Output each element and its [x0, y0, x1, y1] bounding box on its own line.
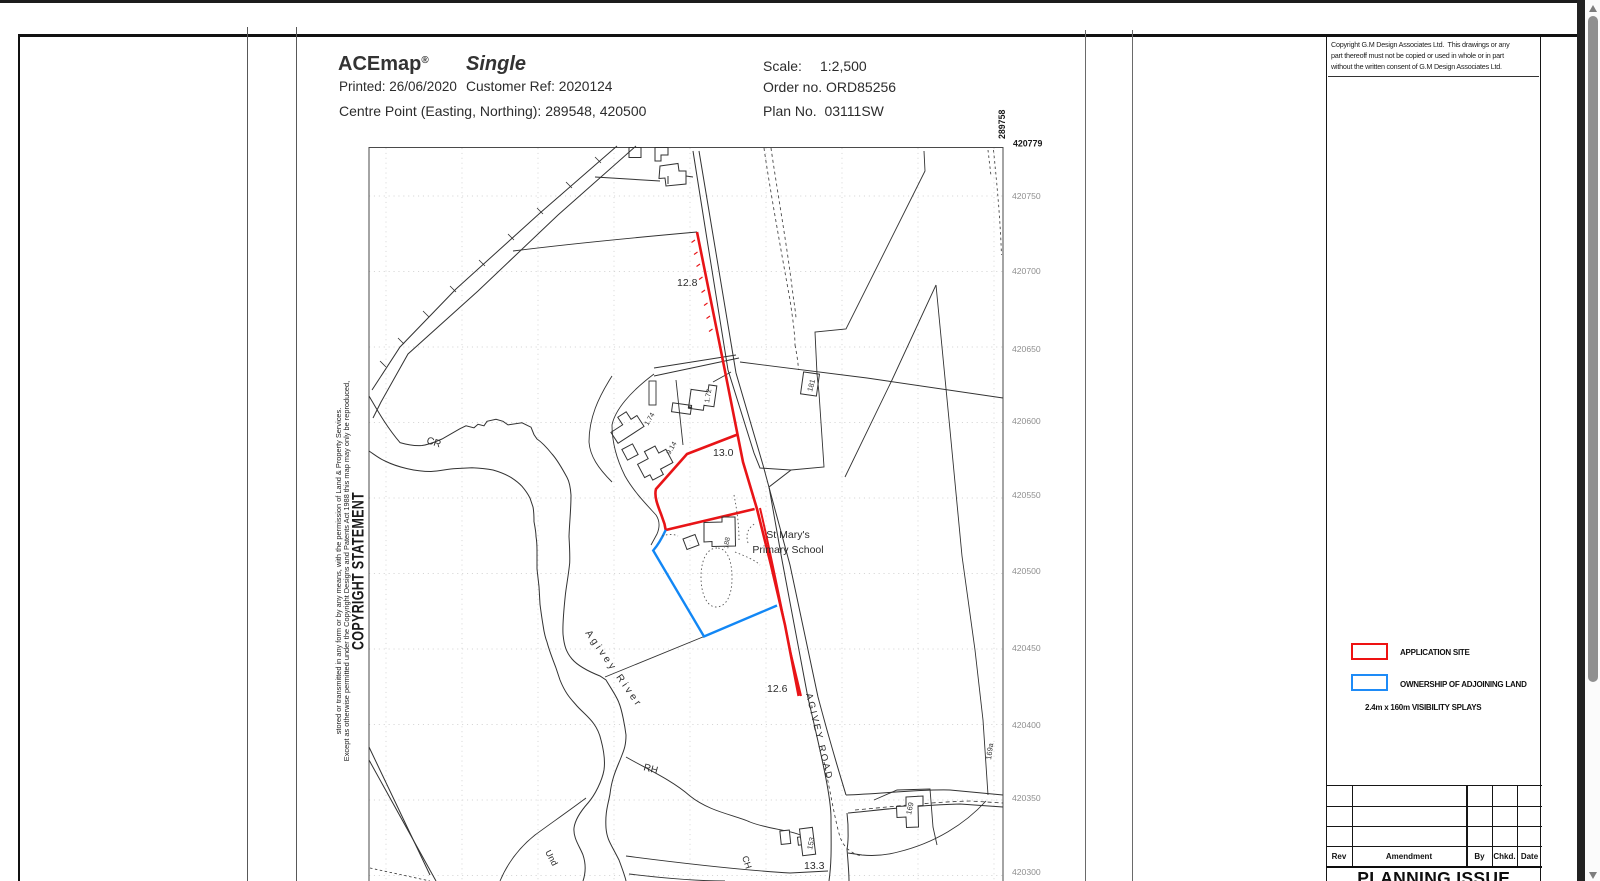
svg-text:RH: RH [642, 762, 659, 776]
svg-text:420550: 420550 [1012, 490, 1041, 500]
svg-text:420500: 420500 [1012, 566, 1041, 576]
svg-text:CR: CR [425, 435, 442, 450]
svg-text:CH: CH [740, 855, 754, 870]
svg-text:13.3: 13.3 [804, 860, 825, 872]
svg-text:9.14: 9.14 [666, 441, 679, 456]
svg-text:Und: Und [543, 848, 560, 867]
svg-text:AGIVEY ROAD: AGIVEY ROAD [803, 692, 835, 782]
svg-text:420750: 420750 [1012, 191, 1041, 201]
svg-text:169a: 169a [984, 742, 995, 761]
svg-text:420700: 420700 [1012, 266, 1041, 276]
svg-text:289758: 289758 [997, 110, 1007, 139]
svg-text:420600: 420600 [1012, 416, 1041, 426]
svg-text:420650: 420650 [1012, 344, 1041, 354]
svg-text:188: 188 [723, 537, 732, 550]
svg-text:181: 181 [805, 378, 817, 392]
svg-text:St Mary's: St Mary's [766, 529, 809, 541]
svg-text:13.0: 13.0 [713, 447, 734, 459]
svg-text:1.74: 1.74 [644, 412, 657, 427]
svg-text:420300: 420300 [1012, 867, 1041, 877]
svg-text:12.6: 12.6 [767, 683, 788, 695]
svg-text:420400: 420400 [1012, 720, 1041, 730]
svg-text:Agivey River: Agivey River [583, 628, 645, 710]
svg-text:1.72: 1.72 [704, 389, 713, 404]
svg-text:12.8: 12.8 [677, 277, 698, 289]
svg-text:420450: 420450 [1012, 643, 1041, 653]
svg-text:420350: 420350 [1012, 793, 1041, 803]
svg-text:420779: 420779 [1013, 139, 1042, 149]
svg-text:Primary School: Primary School [752, 544, 823, 556]
